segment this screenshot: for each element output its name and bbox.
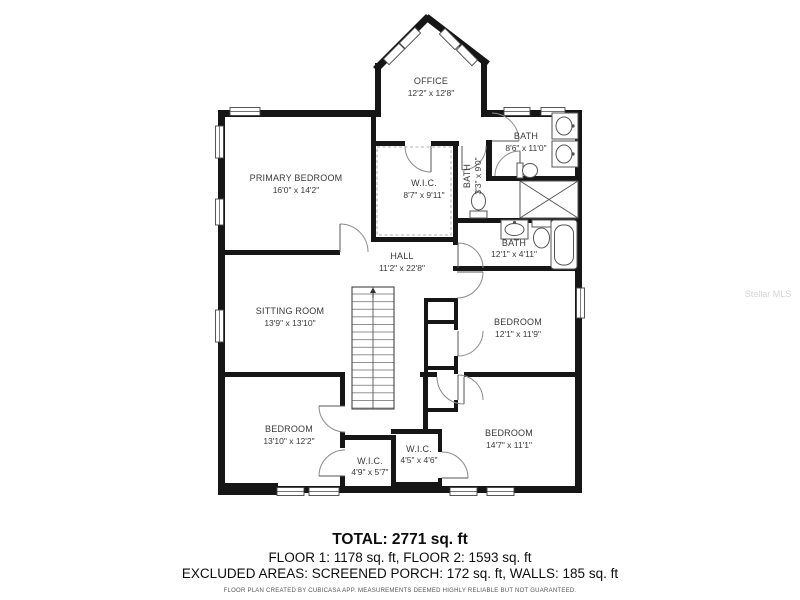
floor-plan-page: OFFICE 12'2" x 12'8" PRIMARY BEDROOM 16'… [0, 0, 800, 600]
room-dims-bedroom-bottom-left: 13'10" x 12'2" [263, 436, 314, 446]
room-label-sitting-room: SITTING ROOM [256, 306, 324, 316]
floor-plan-svg: OFFICE 12'2" x 12'8" PRIMARY BEDROOM 16'… [0, 0, 800, 600]
room-dims-bedroom-right: 12'1" x 11'9" [495, 329, 541, 339]
room-label-bath-middle: BATH [502, 238, 526, 248]
room-dims-wic-bottom-left: 4'9" x 5'7" [351, 467, 388, 477]
room-label-wic-primary: W.I.C. [411, 178, 437, 188]
room-label-bath-small: BATH [462, 164, 472, 188]
room-dims-bath-small: 3'3" x 9'0" [473, 157, 483, 194]
room-dims-primary-bedroom: 16'0" x 14'2" [273, 185, 320, 195]
room-dims-bedroom-bottom-right: 14'7" x 11'1" [486, 440, 532, 450]
room-dims-wic-bottom-right: 4'5" x 4'6" [400, 455, 437, 465]
room-label-bedroom-bottom-left: BEDROOM [265, 424, 313, 434]
toilet-icon-bath-middle [532, 220, 551, 248]
shower-icon [520, 181, 578, 218]
room-label-office: OFFICE [414, 76, 448, 86]
room-dims-sitting-room: 13'9" x 13'10" [264, 318, 315, 328]
bathtub-icon [551, 220, 577, 269]
watermark-text: Stellar MLS [745, 289, 792, 299]
room-dims-wic-primary: 8'7" x 9'11" [403, 190, 444, 200]
summary-block: TOTAL: 2771 sq. ft FLOOR 1: 1178 sq. ft,… [0, 531, 800, 594]
room-label-hall: HALL [390, 251, 413, 261]
room-label-bath-top-right: BATH [514, 131, 538, 141]
room-label-bedroom-bottom-right: BEDROOM [485, 428, 533, 438]
room-label-primary-bedroom: PRIMARY BEDROOM [250, 173, 343, 183]
room-label-wic-bottom-right: W.I.C. [406, 444, 432, 454]
excluded-areas-text: EXCLUDED AREAS: SCREENED PORCH: 172 sq. … [0, 566, 800, 581]
total-area-text: TOTAL: 2771 sq. ft [0, 531, 800, 549]
room-label-wic-bottom-left: W.I.C. [357, 456, 383, 466]
room-dims-bath-middle: 12'1" x 4'11" [491, 249, 537, 259]
sink-icon-bath-middle [501, 220, 528, 239]
toilet-icon-bath-small [470, 192, 487, 218]
room-label-bedroom-right: BEDROOM [494, 317, 542, 327]
room-dims-bath-top-right: 8'6" x 11'0" [505, 143, 546, 153]
double-sink-vanity-icon [552, 113, 578, 167]
disclaimer-text: FLOOR PLAN CREATED BY CUBICASA APP. MEAS… [0, 588, 800, 594]
floor-areas-text: FLOOR 1: 1178 sq. ft, FLOOR 2: 1593 sq. … [0, 550, 800, 565]
room-dims-hall: 11'2" x 22'8" [379, 263, 425, 273]
room-dims-office: 12'2" x 12'8" [408, 88, 455, 98]
toilet-icon-bath-top-right [517, 163, 538, 178]
stairs-icon [352, 287, 394, 409]
